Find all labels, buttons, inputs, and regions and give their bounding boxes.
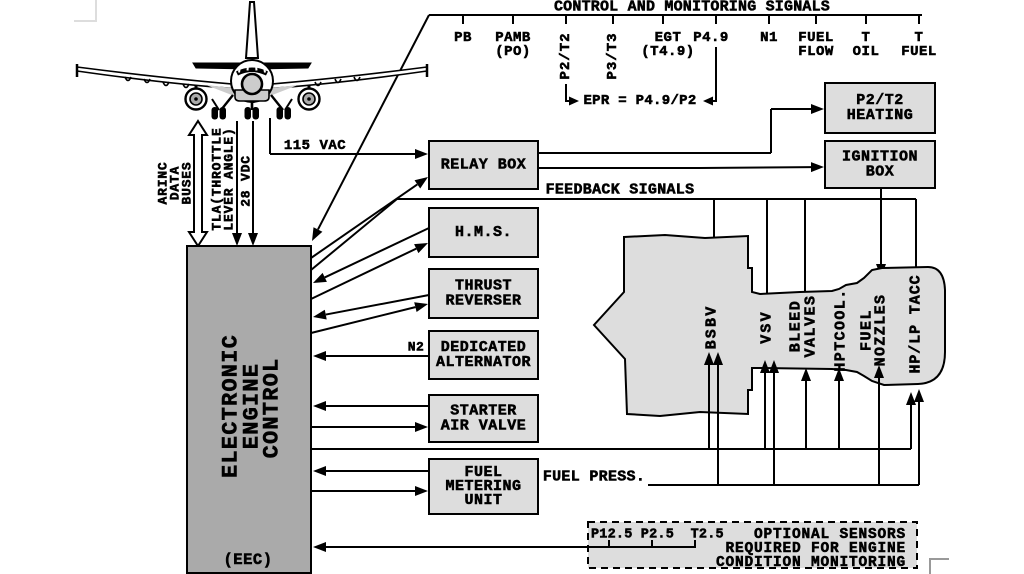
svg-text:H.M.S.: H.M.S. [455,224,512,241]
svg-text:VALVES: VALVES [803,294,820,357]
svg-text:ALTERNATOR: ALTERNATOR [436,354,531,371]
svg-text:P3/T3: P3/T3 [605,32,621,79]
svg-text:P12.5 P2.5 T2.5: P12.5 P2.5 T2.5 [591,528,724,543]
svg-text:115 VAC: 115 VAC [284,138,346,154]
svg-text:(T4.9): (T4.9) [641,44,694,60]
svg-text:FUEL PRESS.: FUEL PRESS. [543,469,645,486]
svg-text:HEATING: HEATING [847,107,914,124]
svg-text:HPTCOOL.: HPTCOOL. [833,288,850,371]
svg-text:P2/T2: P2/T2 [558,32,574,79]
svg-text:N2: N2 [408,340,425,355]
svg-text:N1: N1 [760,30,778,46]
svg-text:BSBV: BSBV [704,305,721,350]
svg-text:BOX: BOX [866,164,895,181]
svg-text:CONTROL: CONTROL [260,358,285,459]
svg-text:CONTROL AND MONITORING SIGNALS: CONTROL AND MONITORING SIGNALS [554,0,830,16]
svg-text:VSV: VSV [759,310,776,344]
svg-text:LEVER ANGLE): LEVER ANGLE) [222,127,237,230]
svg-text:REVERSER: REVERSER [445,293,521,310]
svg-text:FUEL: FUEL [901,44,937,60]
svg-text:FEEDBACK SIGNALS: FEEDBACK SIGNALS [546,182,695,199]
svg-text:EPR = P4.9/P2: EPR = P4.9/P2 [583,93,696,109]
svg-text:CONDITION MONITORING: CONDITION MONITORING [716,555,906,571]
svg-text:28 VDC: 28 VDC [239,155,254,207]
svg-text:UNIT: UNIT [464,492,502,509]
svg-text:PB: PB [454,30,472,46]
svg-text:P4.9: P4.9 [693,30,729,46]
svg-text:OIL: OIL [853,44,880,60]
svg-text:NOZZLES: NOZZLES [873,294,890,367]
svg-text:AIR VALVE: AIR VALVE [441,418,527,435]
svg-text:(PO): (PO) [495,44,531,60]
svg-text:(EEC): (EEC) [223,551,272,569]
svg-text:HP/LP TACC: HP/LP TACC [908,274,925,373]
svg-text:RELAY BOX: RELAY BOX [441,157,527,174]
svg-text:BUSES: BUSES [180,161,195,204]
svg-text:FLOW: FLOW [798,44,834,60]
